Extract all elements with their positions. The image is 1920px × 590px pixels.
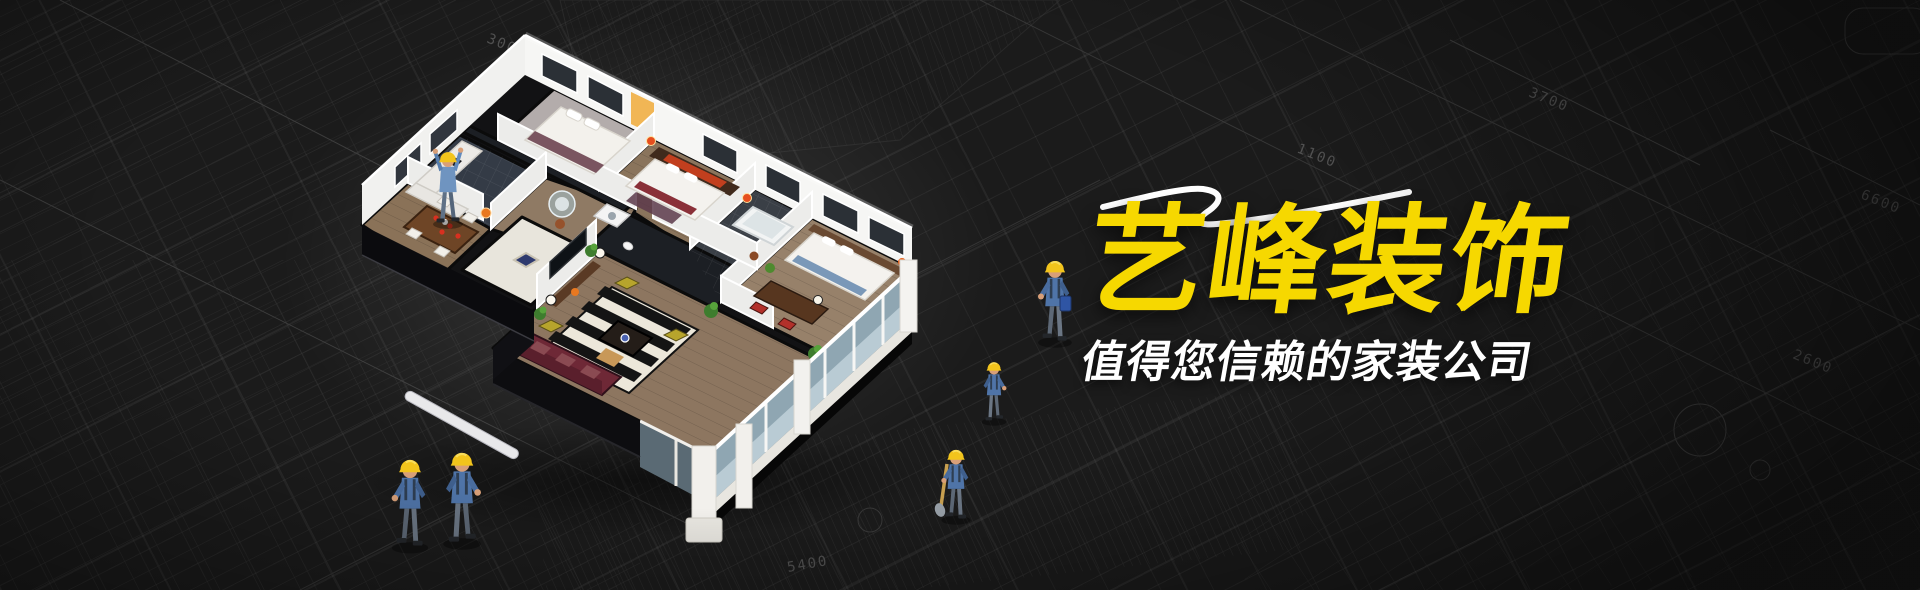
worker-figure-shovel	[933, 450, 970, 525]
worker-figure-with-bag	[1038, 261, 1072, 348]
headline-block: 艺峰装饰 值得您信赖的家装公司	[1078, 200, 1698, 385]
company-name: 艺峰装饰	[1078, 200, 1716, 325]
worker-figure-walking-small	[982, 362, 1007, 425]
hero-banner[interactable]: 3700 1100 6600 2600 300 5400	[0, 0, 1920, 590]
apartment-cutaway	[280, 20, 1000, 542]
tagline: 值得您信赖的家装公司	[1078, 341, 1706, 385]
